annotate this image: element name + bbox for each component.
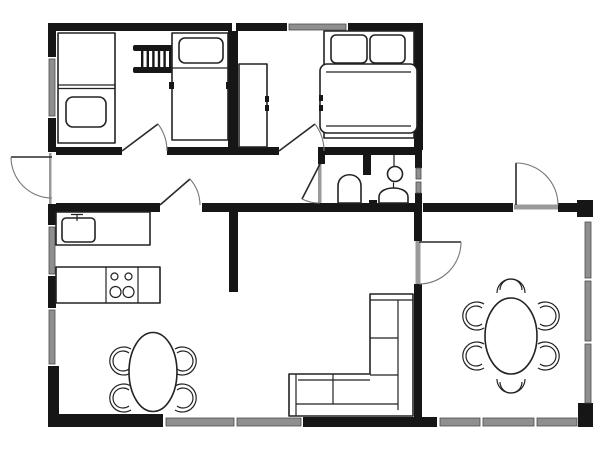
chair-seat-arc — [113, 351, 129, 371]
wardrobe-handle — [265, 105, 269, 111]
bunk-ladder — [133, 45, 173, 73]
ladder-rung — [152, 49, 154, 70]
chair — [110, 384, 131, 412]
dining-exterior-door — [514, 163, 558, 210]
chair — [538, 302, 559, 330]
hallway-bottom-wall — [202, 203, 415, 212]
pillow — [179, 38, 223, 63]
floor-plan-page — [0, 0, 600, 450]
ladder-rung — [158, 49, 160, 70]
bathroom — [338, 155, 408, 203]
left-wall-window-lower — [49, 310, 55, 364]
wardrobe — [239, 64, 267, 147]
ladder-rung — [147, 49, 149, 70]
chair — [497, 279, 525, 293]
chair — [463, 342, 484, 370]
door-threshold — [318, 164, 322, 203]
bathroom-door — [302, 164, 322, 203]
ladder-rung — [169, 49, 171, 70]
round-wash-basin — [388, 167, 403, 182]
bottom-right-corner — [578, 403, 593, 427]
dining-right-window-middle — [585, 281, 591, 341]
ladder-rung — [163, 49, 165, 70]
door-swing-arc — [419, 242, 461, 284]
top-wall-window — [289, 24, 346, 30]
hallway-bottom-wall — [56, 203, 160, 212]
chair-seat-arc — [177, 351, 193, 371]
bottom-wall-window-right — [440, 418, 480, 426]
oval-table — [129, 333, 177, 412]
bottom-wall-window-left — [166, 418, 234, 426]
chair-seat-arc — [466, 306, 482, 326]
kids-bedroom — [58, 33, 231, 143]
toilet — [338, 175, 361, 203]
bottom-wall-segment — [48, 414, 163, 427]
pillow — [66, 97, 106, 127]
bathroom-right-wall — [415, 150, 422, 168]
bathroom-stub-wall — [363, 150, 371, 175]
oval-table — [485, 298, 537, 374]
bottom-wall-window-left — [237, 418, 301, 426]
entrance-door — [11, 153, 52, 204]
bottom-wall-segment — [303, 417, 437, 427]
floor-plan-canvas — [0, 0, 600, 450]
kitchen — [56, 212, 160, 303]
dining-top-wall — [423, 203, 513, 212]
chair — [175, 384, 196, 412]
left-wall-segment — [48, 118, 56, 152]
dining-interior-door — [416, 241, 462, 284]
door-swing-arc — [516, 163, 558, 205]
chair-seat-arc — [466, 346, 482, 366]
door-swing-arc — [190, 179, 200, 205]
kitchen-dining-set — [110, 333, 196, 413]
chair — [175, 347, 196, 375]
wall-joint-tick — [232, 23, 236, 31]
bedroom-bottom-wall — [56, 147, 122, 155]
bedroom-bottom-wall — [167, 147, 279, 155]
top-wall-segment — [48, 23, 233, 31]
left-wall-window-middle — [49, 227, 55, 274]
master-bedroom — [239, 31, 417, 147]
stove-counter — [56, 267, 160, 303]
door-swing-arc — [11, 157, 52, 198]
wash-basin — [379, 188, 408, 203]
kids-bedroom-door — [122, 124, 167, 151]
duvet-blanket — [320, 64, 417, 133]
chair-seat-arc — [540, 306, 556, 326]
pillow — [370, 35, 405, 63]
wardrobe-handle — [265, 96, 269, 102]
bathroom-right-window — [416, 168, 421, 179]
master-bedroom-door — [279, 124, 324, 151]
bathroom-right-window — [416, 182, 421, 193]
pillow — [331, 35, 367, 63]
door-threshold — [416, 241, 421, 284]
left-wall-segment — [48, 23, 56, 57]
bathroom-door-stop — [369, 200, 377, 204]
chair — [538, 342, 559, 370]
chair — [463, 302, 484, 330]
chair-seat-arc — [540, 346, 556, 366]
top-wall-segment — [348, 23, 423, 31]
kitchen-sink — [62, 218, 95, 242]
bed-frame-nub — [319, 95, 323, 101]
l-shaped-sofa — [289, 294, 413, 416]
chair — [497, 379, 525, 393]
living-dining-divider — [414, 284, 422, 418]
door-leaf — [302, 164, 320, 199]
living-dining-divider — [414, 203, 422, 241]
hallway-door — [160, 179, 200, 205]
door-leaf — [122, 124, 158, 151]
left-wall-segment — [48, 204, 56, 225]
dining-room-set — [463, 279, 559, 393]
dining-right-window-upper — [585, 222, 591, 278]
bed-frame-nub — [226, 82, 231, 89]
dining-top-right-corner — [577, 200, 593, 217]
bottom-wall-window-right — [483, 418, 534, 426]
door-swing-arc — [302, 199, 320, 203]
bathroom-right-wall — [415, 193, 422, 203]
dining-right-window-lower — [585, 344, 591, 403]
door-swing-arc — [158, 124, 167, 151]
door-threshold — [514, 205, 558, 210]
bed-frame-nub — [319, 105, 323, 111]
door-leaf — [279, 124, 315, 151]
bottom-wall-window-right — [537, 418, 577, 426]
door-threshold — [49, 153, 52, 204]
chair — [110, 347, 131, 375]
chair-seat-arc — [113, 388, 129, 408]
door-leaf — [160, 179, 190, 205]
living-room — [289, 294, 413, 416]
kitchen-divider-wall — [229, 212, 238, 292]
left-wall-segment — [48, 276, 56, 308]
dining-top-wall — [558, 203, 578, 212]
left-wall-window-upper — [49, 59, 55, 116]
top-wall-segment — [237, 23, 287, 31]
ladder-rung — [141, 49, 143, 70]
bed-frame-nub — [169, 82, 174, 89]
chair-seat-arc — [177, 388, 193, 408]
